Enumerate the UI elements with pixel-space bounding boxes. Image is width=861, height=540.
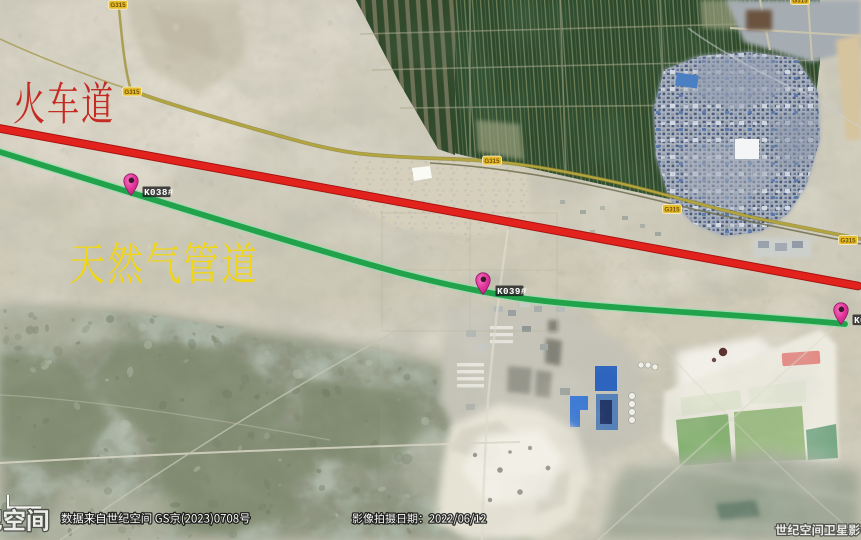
svg-text:G315: G315 [124,89,140,96]
svg-text:K039#: K039# [497,286,527,297]
svg-text:G315: G315 [110,2,126,9]
svg-text:G315: G315 [484,158,500,165]
svg-text:K038#: K038# [144,187,174,198]
svg-text:K0: K0 [854,315,861,326]
svg-text:G315: G315 [664,206,680,213]
svg-text:G315: G315 [840,237,856,244]
svg-text:G315: G315 [792,0,808,4]
